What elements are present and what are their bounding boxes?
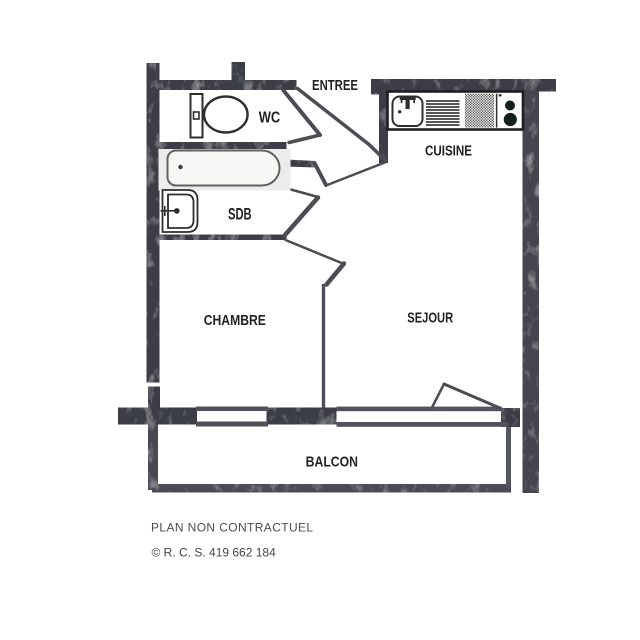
- svg-text:CUISINE: CUISINE: [425, 142, 472, 159]
- svg-text:SEJOUR: SEJOUR: [407, 309, 453, 326]
- svg-text:BALCON: BALCON: [306, 453, 358, 469]
- svg-text:CHAMBRE: CHAMBRE: [204, 312, 266, 328]
- svg-text:SDB: SDB: [228, 205, 252, 224]
- svg-text:WC: WC: [259, 109, 280, 126]
- svg-text:ENTREE: ENTREE: [312, 76, 358, 93]
- svg-text:© R. C. S. 419 662 184: © R. C. S. 419 662 184: [152, 545, 277, 559]
- svg-text:PLAN NON CONTRACTUEL: PLAN NON CONTRACTUEL: [151, 521, 314, 535]
